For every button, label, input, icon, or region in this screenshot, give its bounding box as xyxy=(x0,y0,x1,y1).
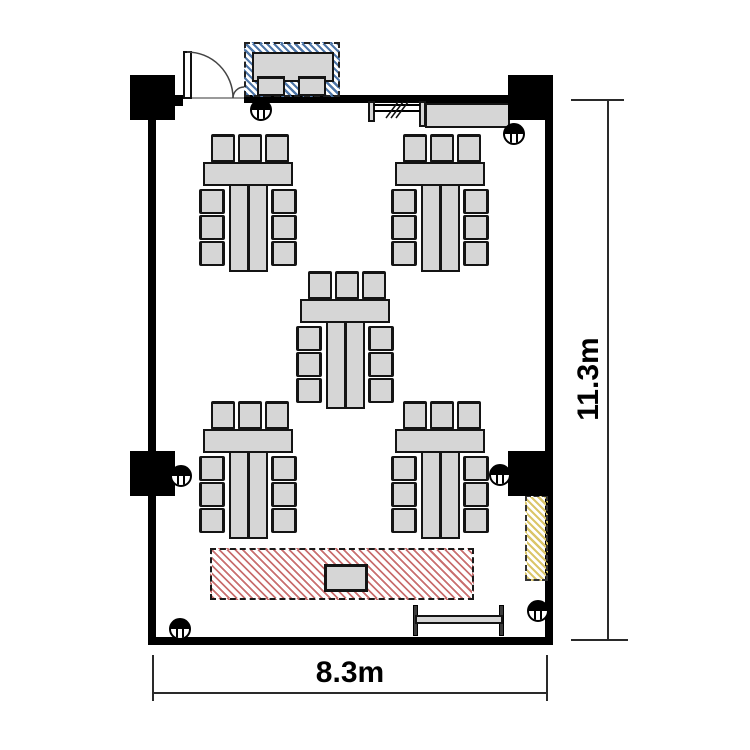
structural-column xyxy=(508,451,553,496)
chair xyxy=(199,189,225,214)
long-table xyxy=(421,451,441,539)
chair xyxy=(368,326,394,351)
long-table xyxy=(421,184,441,272)
chair xyxy=(271,215,297,240)
table-group-bottom-left xyxy=(198,400,298,540)
head-table xyxy=(203,429,293,453)
chair xyxy=(296,326,322,351)
floor-plan-canvas: 8.3m 11.3m xyxy=(0,0,750,750)
long-table xyxy=(248,184,268,272)
partition-rail xyxy=(374,104,420,106)
table-group-top-left xyxy=(198,133,298,273)
structural-column xyxy=(508,75,553,120)
width-dimension-line xyxy=(153,692,547,694)
partition-rail xyxy=(374,110,420,112)
column-grid-marker xyxy=(489,464,511,486)
table-group-bottom-right xyxy=(390,400,490,540)
chair xyxy=(391,482,417,507)
chair xyxy=(463,508,489,533)
chair xyxy=(296,352,322,377)
chair xyxy=(463,215,489,240)
chair xyxy=(403,134,427,163)
podium xyxy=(324,564,368,592)
chair xyxy=(335,271,359,300)
marker-hatch-line xyxy=(516,134,518,143)
chair xyxy=(391,215,417,240)
height-dimension-line xyxy=(607,100,609,640)
structural-column xyxy=(130,75,175,120)
chair xyxy=(199,456,225,481)
marker-hatch-line xyxy=(183,476,185,485)
long-table xyxy=(229,184,249,272)
long-table xyxy=(440,451,460,539)
marker-hatch-line xyxy=(540,611,542,620)
long-table xyxy=(326,321,346,409)
chair xyxy=(457,401,481,430)
reception-chair xyxy=(298,76,326,96)
marker-hatch-line xyxy=(182,629,184,638)
column-grid-marker xyxy=(170,465,192,487)
chair xyxy=(430,401,454,430)
partition-post xyxy=(419,101,426,127)
column-grid-marker xyxy=(169,618,191,640)
table-group-top-right xyxy=(390,133,490,273)
dimension-tick xyxy=(571,99,624,101)
marker-hatch-line xyxy=(263,110,265,119)
chair xyxy=(199,215,225,240)
chair xyxy=(296,378,322,403)
sideboard-counter xyxy=(425,103,510,128)
long-table xyxy=(229,451,249,539)
chair xyxy=(391,456,417,481)
marker-hatch-line xyxy=(257,110,259,119)
chair xyxy=(391,508,417,533)
chair xyxy=(238,401,262,430)
chair xyxy=(308,271,332,300)
dimension-tick xyxy=(571,639,628,641)
marker-hatch-line xyxy=(510,134,512,143)
width-dimension-label: 8.3m xyxy=(153,656,547,690)
door-leaf xyxy=(183,51,192,99)
marker-hatch-line xyxy=(177,476,179,485)
chair xyxy=(403,401,427,430)
chair xyxy=(211,401,235,430)
chair xyxy=(199,482,225,507)
marker-hatch-line xyxy=(496,475,498,484)
chair xyxy=(457,134,481,163)
chair xyxy=(463,456,489,481)
long-table xyxy=(248,451,268,539)
chair xyxy=(271,482,297,507)
column-grid-marker xyxy=(250,99,272,121)
long-table xyxy=(440,184,460,272)
chair xyxy=(362,271,386,300)
chair xyxy=(199,241,225,266)
door-swing-arc xyxy=(187,52,233,98)
marker-hatch-line xyxy=(534,611,536,620)
head-table xyxy=(395,162,485,186)
chair xyxy=(271,508,297,533)
reception-chair xyxy=(257,76,285,96)
chair xyxy=(391,189,417,214)
chair xyxy=(199,508,225,533)
height-dimension-label: 11.3m xyxy=(572,299,606,459)
structural-column xyxy=(130,451,175,496)
chair xyxy=(463,241,489,266)
chair xyxy=(463,189,489,214)
chair xyxy=(211,134,235,163)
chair xyxy=(271,241,297,266)
chair xyxy=(238,134,262,163)
chair xyxy=(368,352,394,377)
head-table xyxy=(395,429,485,453)
head-table xyxy=(203,162,293,186)
long-table xyxy=(345,321,365,409)
marker-hatch-line xyxy=(502,475,504,484)
table-group-center xyxy=(295,270,395,410)
column-grid-marker xyxy=(503,123,525,145)
chair xyxy=(271,189,297,214)
head-table xyxy=(300,299,390,323)
chair xyxy=(430,134,454,163)
chair xyxy=(271,456,297,481)
chair xyxy=(463,482,489,507)
side-equipment-zone xyxy=(525,495,548,581)
bench xyxy=(415,615,503,624)
marker-hatch-line xyxy=(176,629,178,638)
chair xyxy=(265,134,289,163)
chair xyxy=(391,241,417,266)
column-grid-marker xyxy=(527,600,549,622)
chair xyxy=(265,401,289,430)
